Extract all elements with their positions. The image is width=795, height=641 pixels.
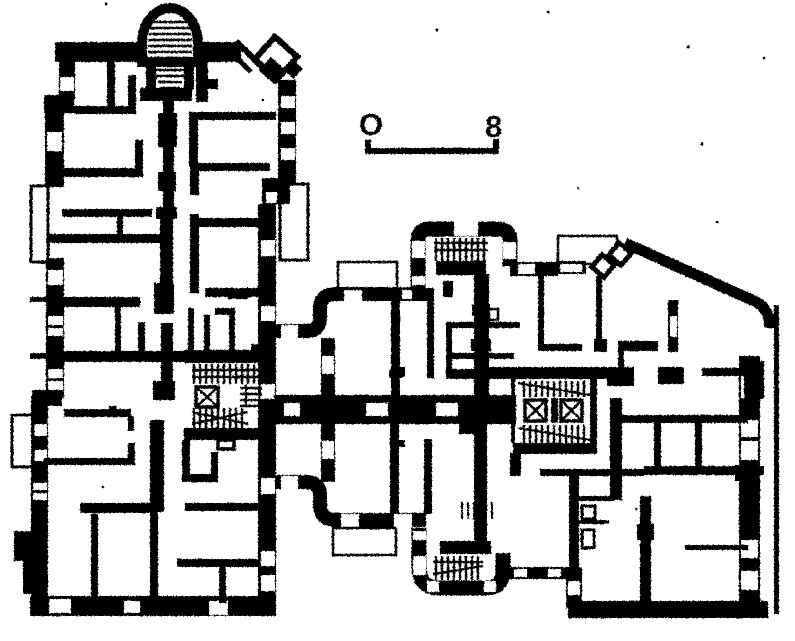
svg-text:8: 8 [485, 109, 502, 144]
svg-text:O: O [359, 107, 383, 142]
